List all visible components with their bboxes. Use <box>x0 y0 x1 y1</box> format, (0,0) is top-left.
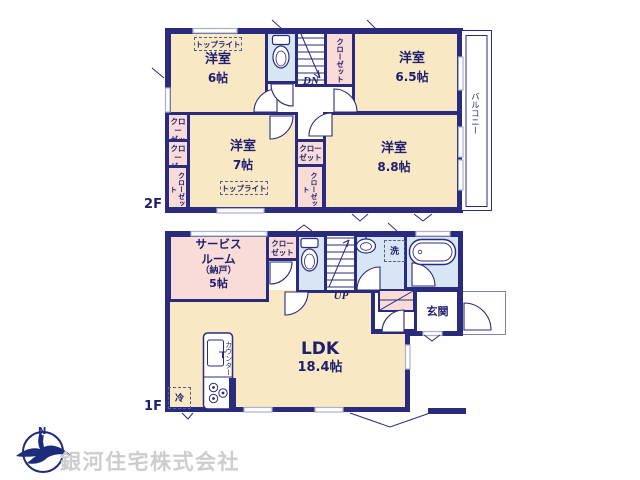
closet-2f-upper: クローゼット <box>324 31 355 87</box>
closet-2f-west3: クローゼット <box>166 165 189 210</box>
wall-detached-bar <box>428 408 466 414</box>
closet-2f-mid2: クローゼット <box>295 164 325 210</box>
floor-2-label: 2F <box>143 198 163 212</box>
closet-label: クローゼット <box>269 239 296 257</box>
wall-1f-bottom <box>165 407 410 412</box>
wall-ldk-right <box>405 331 410 412</box>
bedroom-7-name: 洋室 <box>213 140 273 154</box>
skylight-box-sw: トップライト <box>220 181 268 195</box>
service-room-label: サービス ルーム （納戸） 5帖 <box>176 238 261 290</box>
stairs-1f <box>324 231 357 293</box>
wall-1f-top <box>165 231 463 236</box>
wall-1f-right-upper <box>458 231 463 336</box>
wall-1f-left <box>165 231 170 412</box>
ldk-name: LDK <box>280 340 360 359</box>
ldk-size: 18.4帖 <box>280 361 360 375</box>
stairs-up-label: UP <box>327 290 355 302</box>
closet-label: クローゼット <box>169 170 185 208</box>
closet-1f: クローゼット <box>266 234 299 261</box>
toilet-2f <box>265 31 298 84</box>
floor-1-label: 1F <box>143 400 163 414</box>
wall-entrance-bottom <box>410 331 463 336</box>
fridge-box: 冷 <box>168 387 191 409</box>
bedroom-6-size: 6帖 <box>188 72 248 85</box>
floor-plan: バルコニー クローゼット クローゼット クローゼット クローゼット クローゼット… <box>0 0 640 480</box>
wall-hall-horizontal <box>371 329 417 334</box>
entrance-porch <box>460 291 506 335</box>
service-room-size: 5帖 <box>176 278 261 290</box>
service-room-line1: サービス <box>176 238 261 251</box>
entrance-label: 玄関 <box>415 306 460 318</box>
company-name: 銀河住宅株式会社 <box>60 446 240 476</box>
service-room-line3: （納戸） <box>176 267 261 277</box>
service-room-line2: ルーム <box>176 253 261 266</box>
stairs-down-label: DN <box>298 75 324 87</box>
balcony-label: バルコニー <box>469 92 478 135</box>
wall-hall-vertical <box>371 289 375 334</box>
skylight-box-nw: トップライト <box>194 37 242 51</box>
laundry-box: 洗 <box>384 240 405 262</box>
closet-label: クローゼット <box>298 144 323 162</box>
bathroom-1f <box>404 234 461 290</box>
bedroom-8-8-size: 8.8帖 <box>364 161 424 174</box>
bedroom-8-8-name: 洋室 <box>364 142 424 156</box>
bedroom-6-5-size: 6.5帖 <box>382 71 442 84</box>
counter-label: カウンター <box>224 336 232 380</box>
bedroom-6-name: 洋室 <box>188 53 248 67</box>
shoe-cabinet <box>378 289 415 312</box>
closet-label: クローゼット <box>335 38 343 83</box>
closet-2f-mid1: クローゼット <box>295 139 326 167</box>
closet-label: クローゼット <box>302 170 318 208</box>
toilet-1f <box>296 234 327 293</box>
ldk-floor-right <box>373 334 407 409</box>
bedroom-6-5-name: 洋室 <box>382 52 442 66</box>
bedroom-7-size: 7帖 <box>213 159 273 172</box>
